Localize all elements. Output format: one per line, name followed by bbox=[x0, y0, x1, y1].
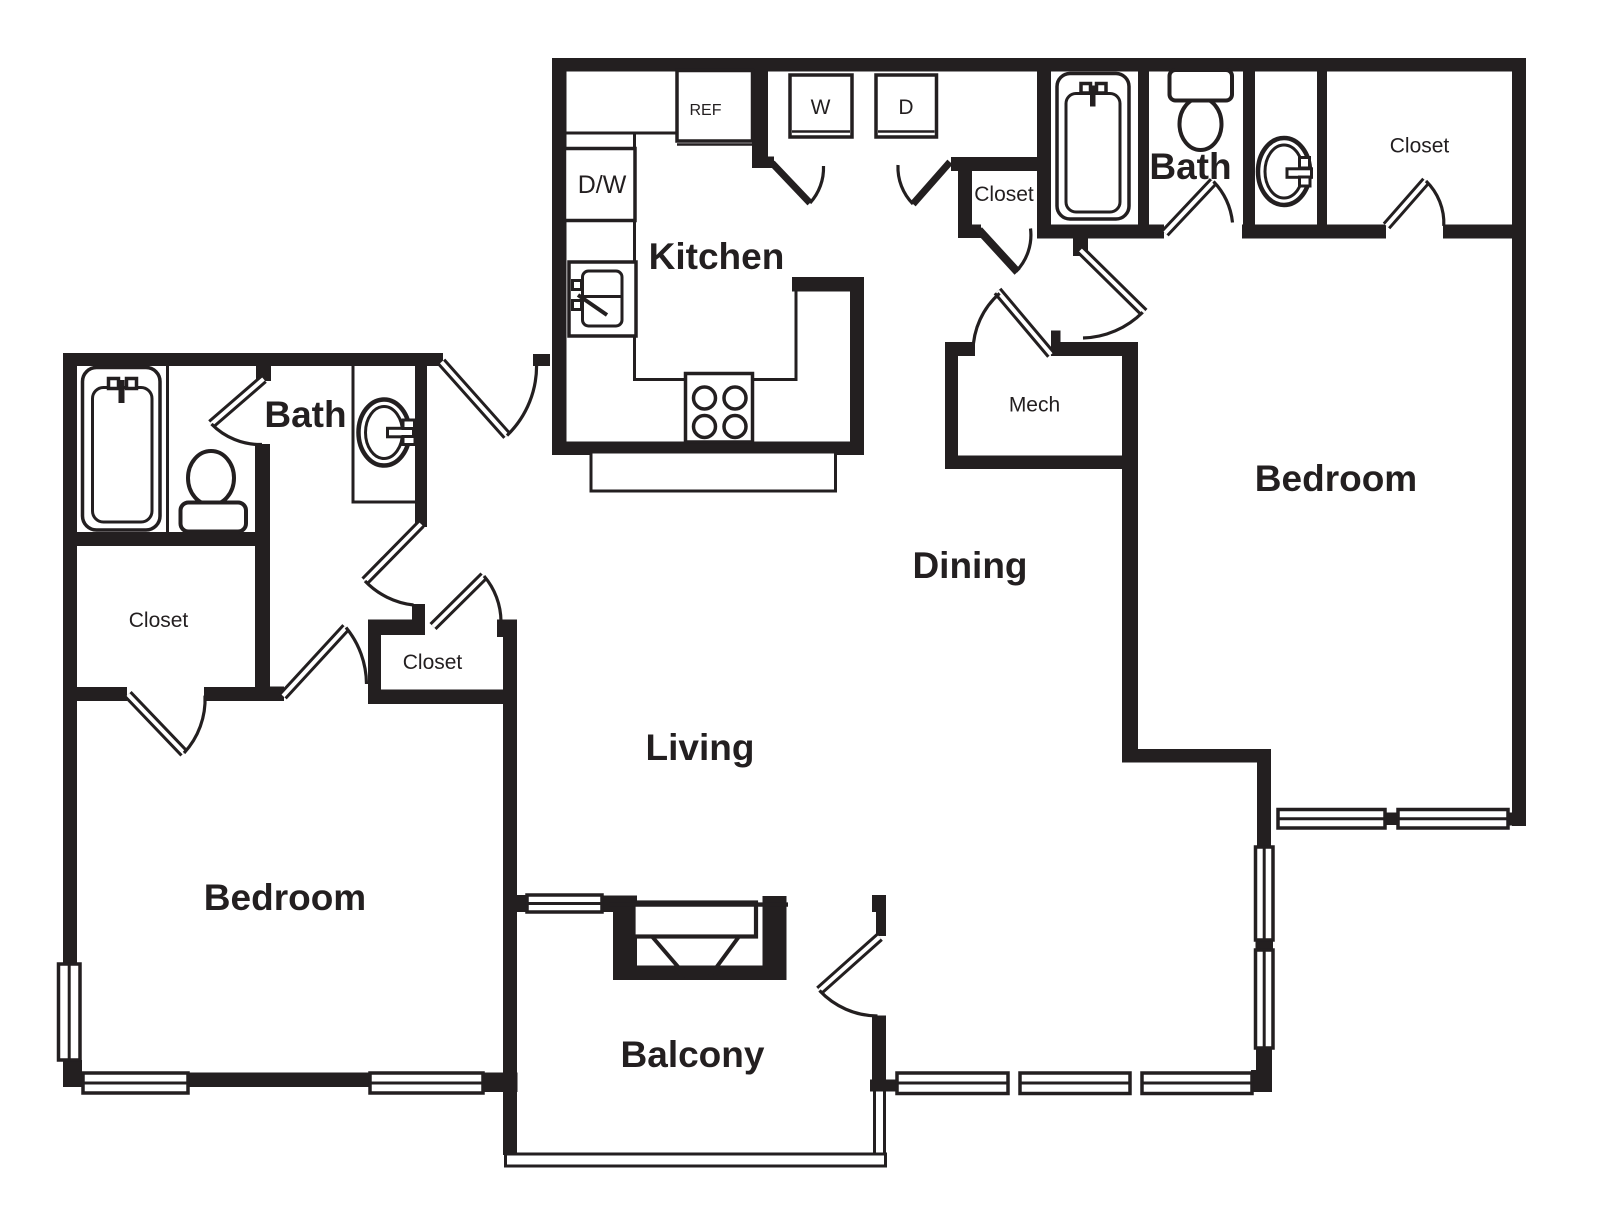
svg-text:Bedroom: Bedroom bbox=[1255, 458, 1417, 499]
svg-text:Closet: Closet bbox=[403, 651, 463, 674]
svg-text:Closet: Closet bbox=[129, 609, 189, 632]
svg-text:Closet: Closet bbox=[974, 183, 1034, 206]
svg-text:Bath: Bath bbox=[264, 394, 346, 435]
svg-text:Balcony: Balcony bbox=[621, 1034, 765, 1075]
svg-text:D/W: D/W bbox=[578, 171, 627, 199]
svg-text:REF: REF bbox=[690, 102, 722, 119]
svg-text:Bath: Bath bbox=[1149, 146, 1231, 187]
svg-text:Bedroom: Bedroom bbox=[204, 877, 366, 918]
svg-text:Closet: Closet bbox=[1390, 135, 1450, 158]
svg-text:Living: Living bbox=[646, 727, 755, 768]
svg-text:D: D bbox=[898, 96, 913, 119]
svg-text:Dining: Dining bbox=[912, 545, 1027, 586]
svg-text:W: W bbox=[811, 96, 831, 119]
svg-text:Kitchen: Kitchen bbox=[649, 236, 785, 277]
svg-text:Mech: Mech bbox=[1009, 394, 1060, 417]
